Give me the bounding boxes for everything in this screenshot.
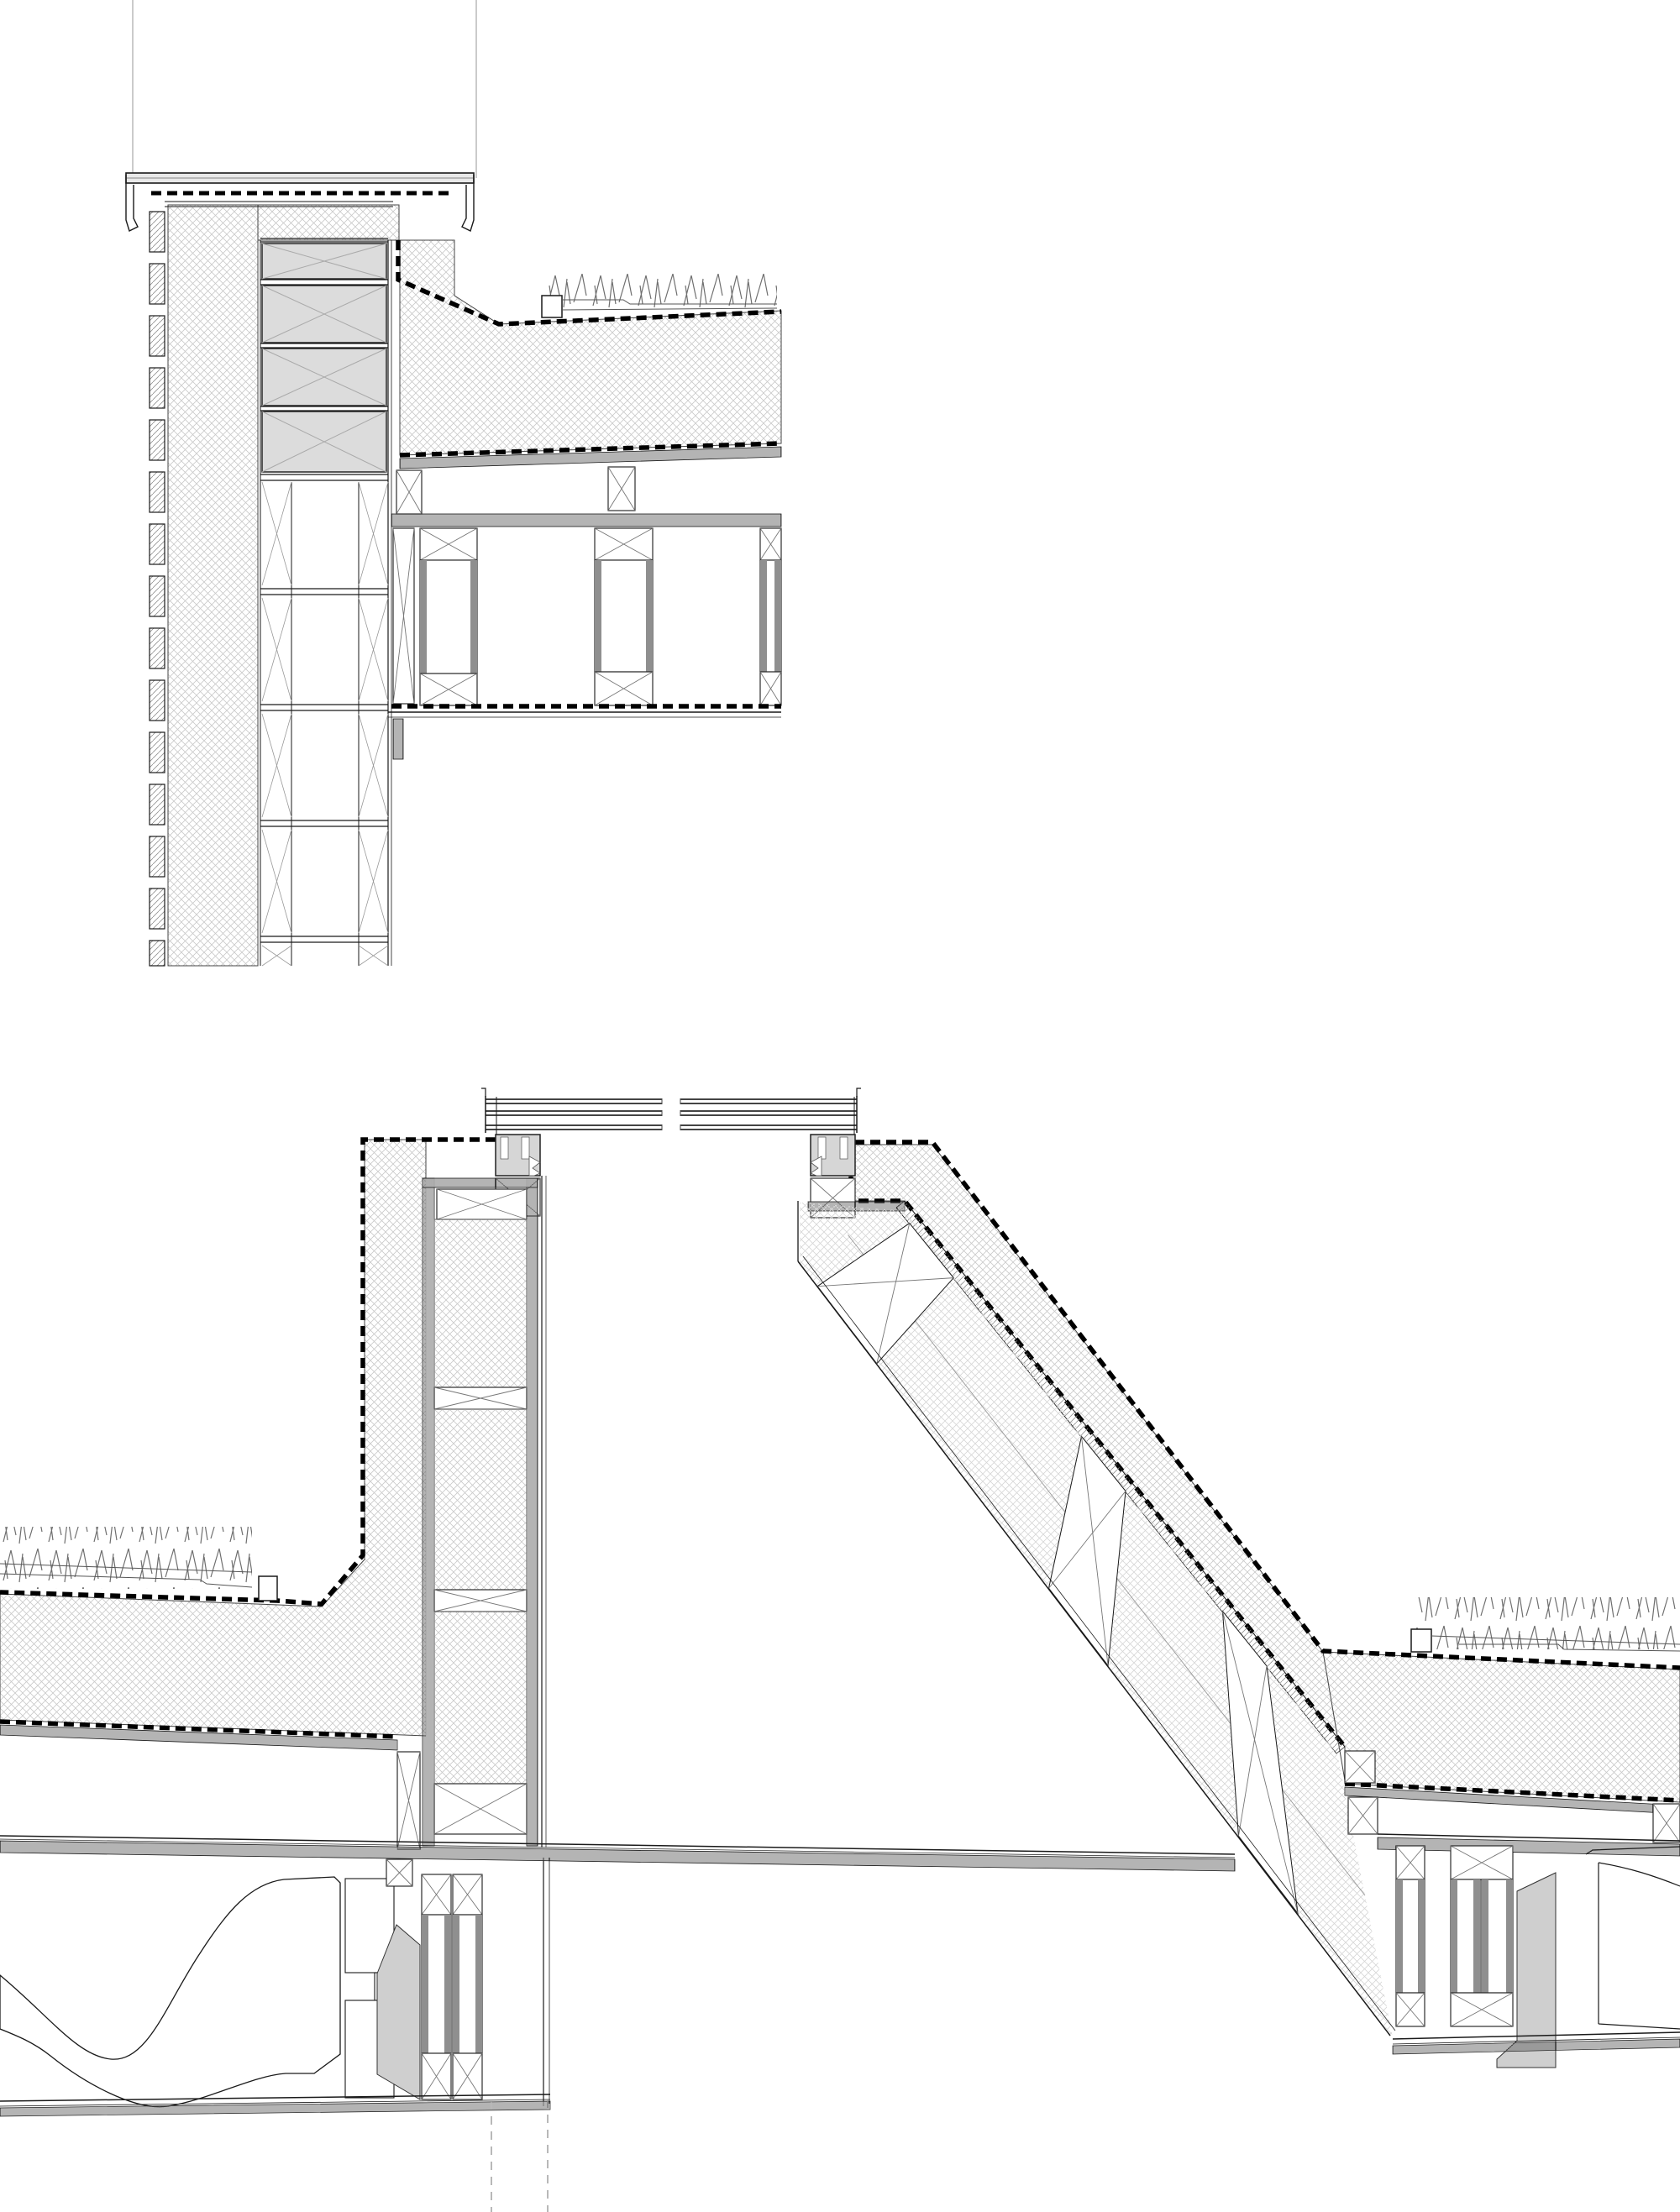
skylight-glazing: [481, 1088, 861, 1133]
facade-cladding-tiles: [150, 212, 165, 966]
skylight-atrium-roof-detail: [0, 1088, 1680, 2212]
roof-buildup-top-detail: [391, 447, 781, 527]
drawing-sheet: [0, 0, 1680, 2212]
floor-deck: [0, 1834, 1680, 1871]
parapet-infill-panels: [260, 238, 388, 472]
floor-structure-right: [1393, 1846, 1680, 2068]
green-roof-top-detail: [542, 274, 777, 317]
sloped-roof-band: [798, 1201, 1395, 2037]
projection-lines-bottom: [491, 2099, 548, 2212]
parapet-green-roof-detail: [126, 0, 781, 966]
projection-lines-top: [133, 0, 476, 178]
left-upstand-wall: [423, 1176, 546, 1848]
service-cavity-top-detail: [388, 528, 781, 759]
floor-structure-left: [0, 1858, 550, 2116]
architectural-detail-drawing: [0, 0, 1680, 2212]
